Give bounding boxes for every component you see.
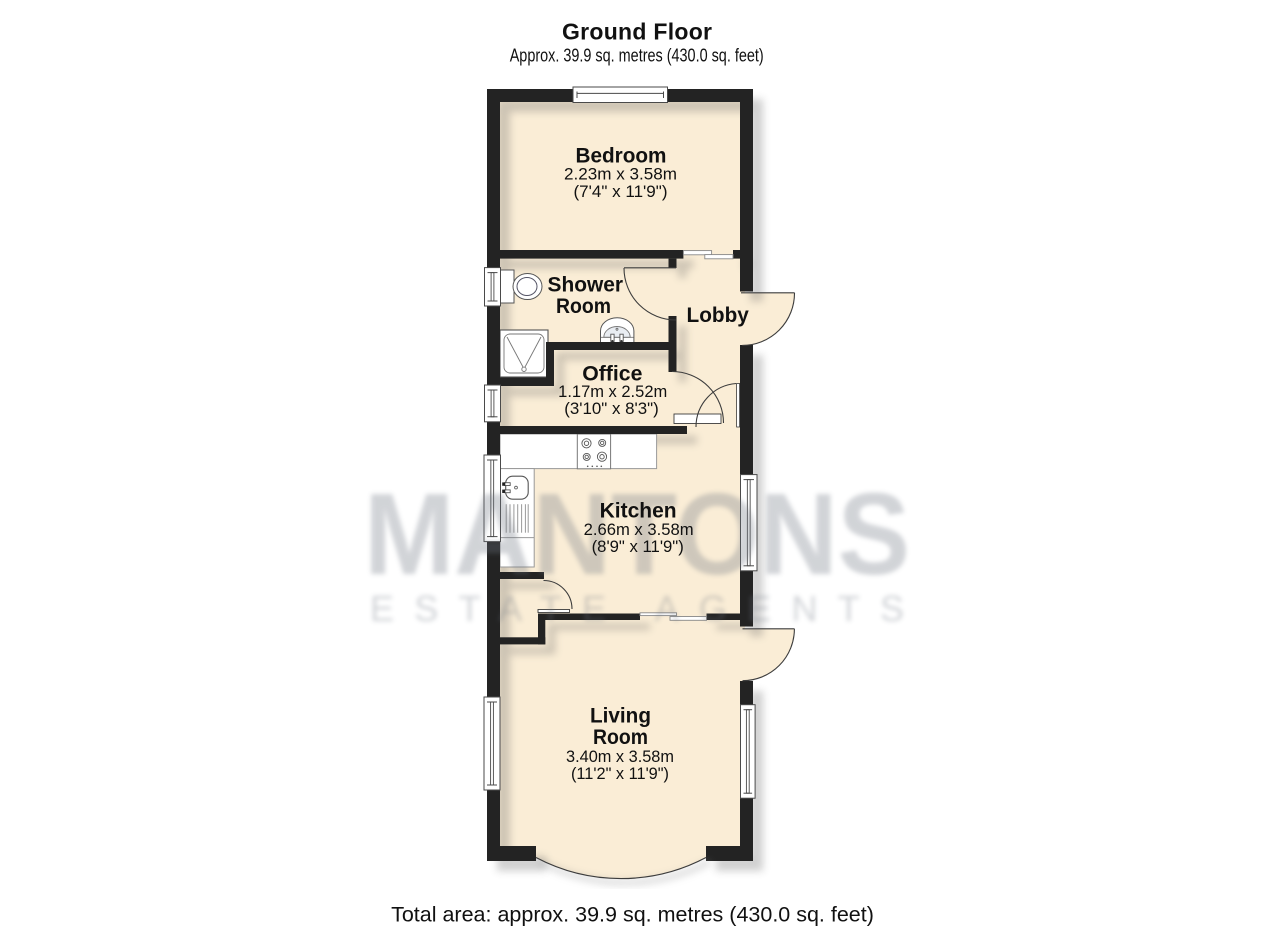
svg-text:1.17m x 2.52m: 1.17m x 2.52m [558, 383, 667, 401]
svg-text:2.66m x 3.58m: 2.66m x 3.58m [584, 521, 694, 539]
svg-text:Approx. 39.9 sq. metres (430.0: Approx. 39.9 sq. metres (430.0 sq. feet) [510, 45, 764, 65]
svg-text:Room: Room [593, 725, 648, 749]
svg-text:Total area: approx. 39.9 sq. m: Total area: approx. 39.9 sq. metres (430… [391, 902, 874, 926]
svg-text:2.23m x 3.58m: 2.23m x 3.58m [564, 166, 677, 184]
svg-text:(3'10" x 8'3"): (3'10" x 8'3") [564, 400, 659, 418]
svg-text:3.40m x 3.58m: 3.40m x 3.58m [566, 748, 674, 766]
svg-text:Room: Room [556, 294, 611, 318]
svg-text:Kitchen: Kitchen [600, 498, 677, 522]
svg-text:(11'2" x 11'9"): (11'2" x 11'9") [571, 765, 669, 783]
svg-text:Lobby: Lobby [687, 303, 749, 327]
svg-text:Bedroom: Bedroom [576, 143, 667, 167]
svg-text:(7'4" x 11'9"): (7'4" x 11'9") [574, 183, 668, 201]
svg-text:(8'9" x 11'9"): (8'9" x 11'9") [592, 538, 684, 556]
svg-text:Ground Floor: Ground Floor [562, 19, 712, 45]
